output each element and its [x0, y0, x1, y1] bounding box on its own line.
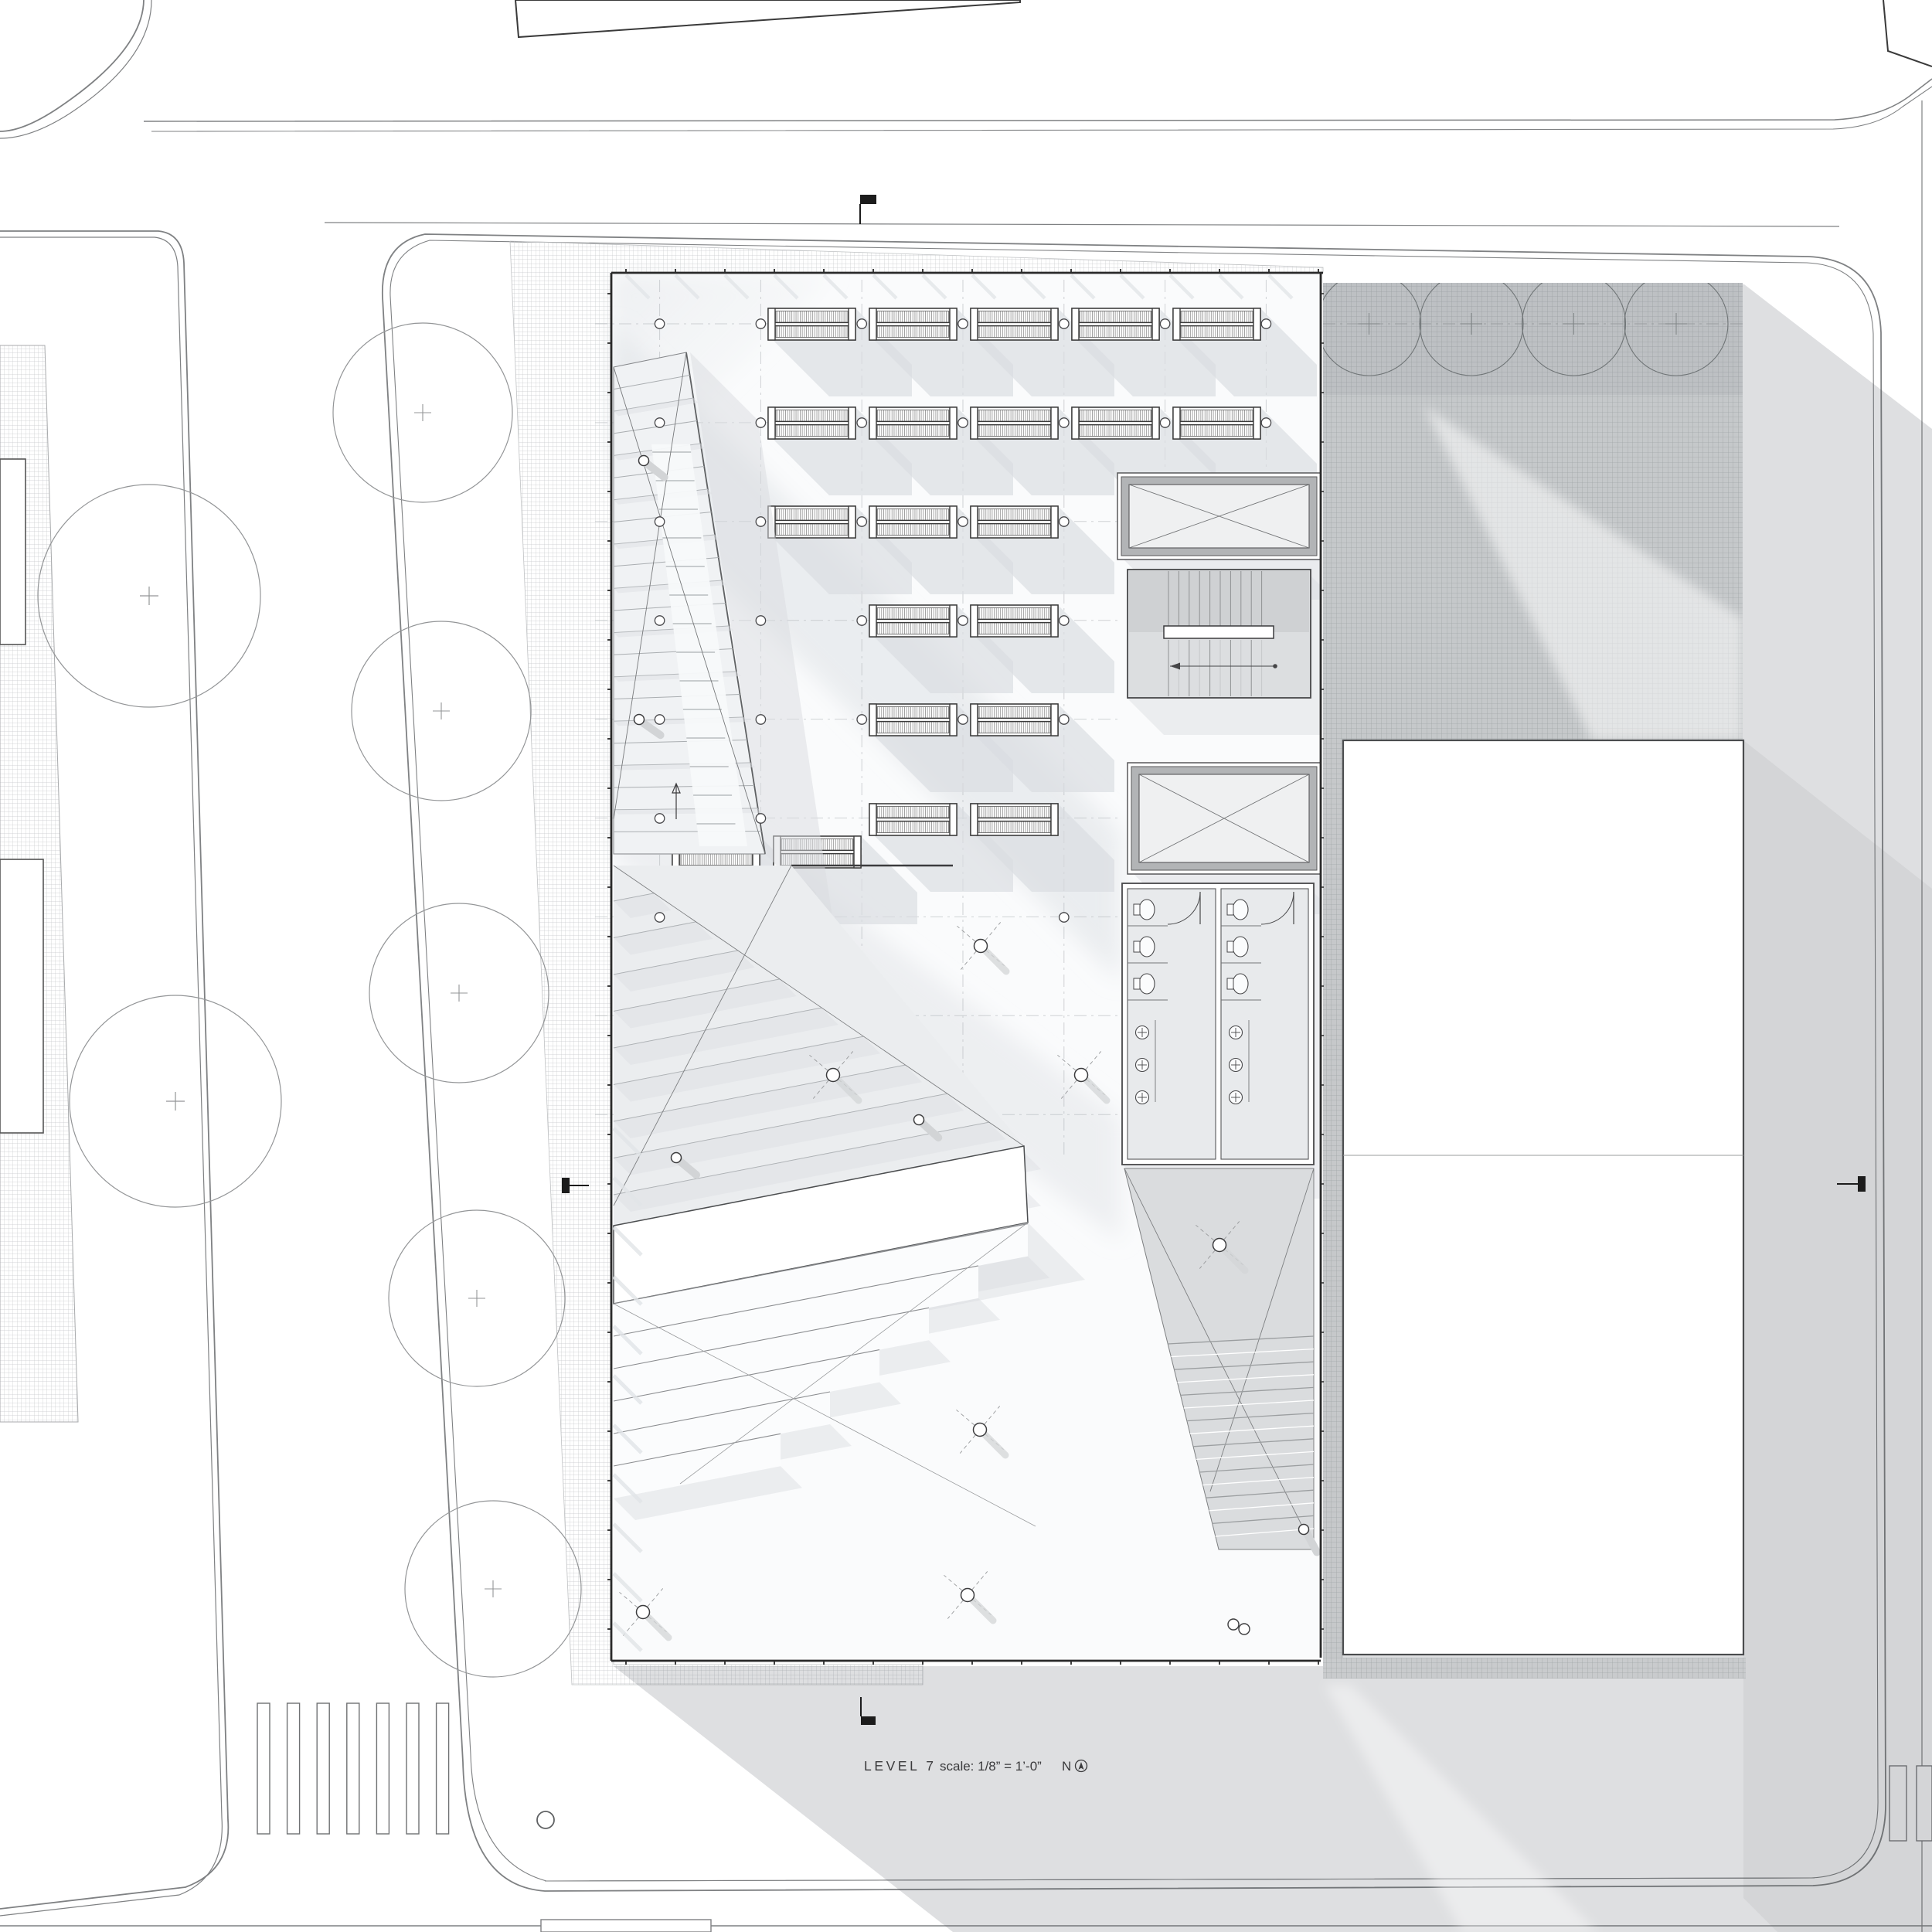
svg-text:LEVEL 7: LEVEL 7 — [864, 1758, 937, 1774]
svg-text:scale: 1/8” = 1’-0”: scale: 1/8” = 1’-0” — [940, 1759, 1042, 1774]
svg-text:N: N — [1062, 1759, 1071, 1774]
